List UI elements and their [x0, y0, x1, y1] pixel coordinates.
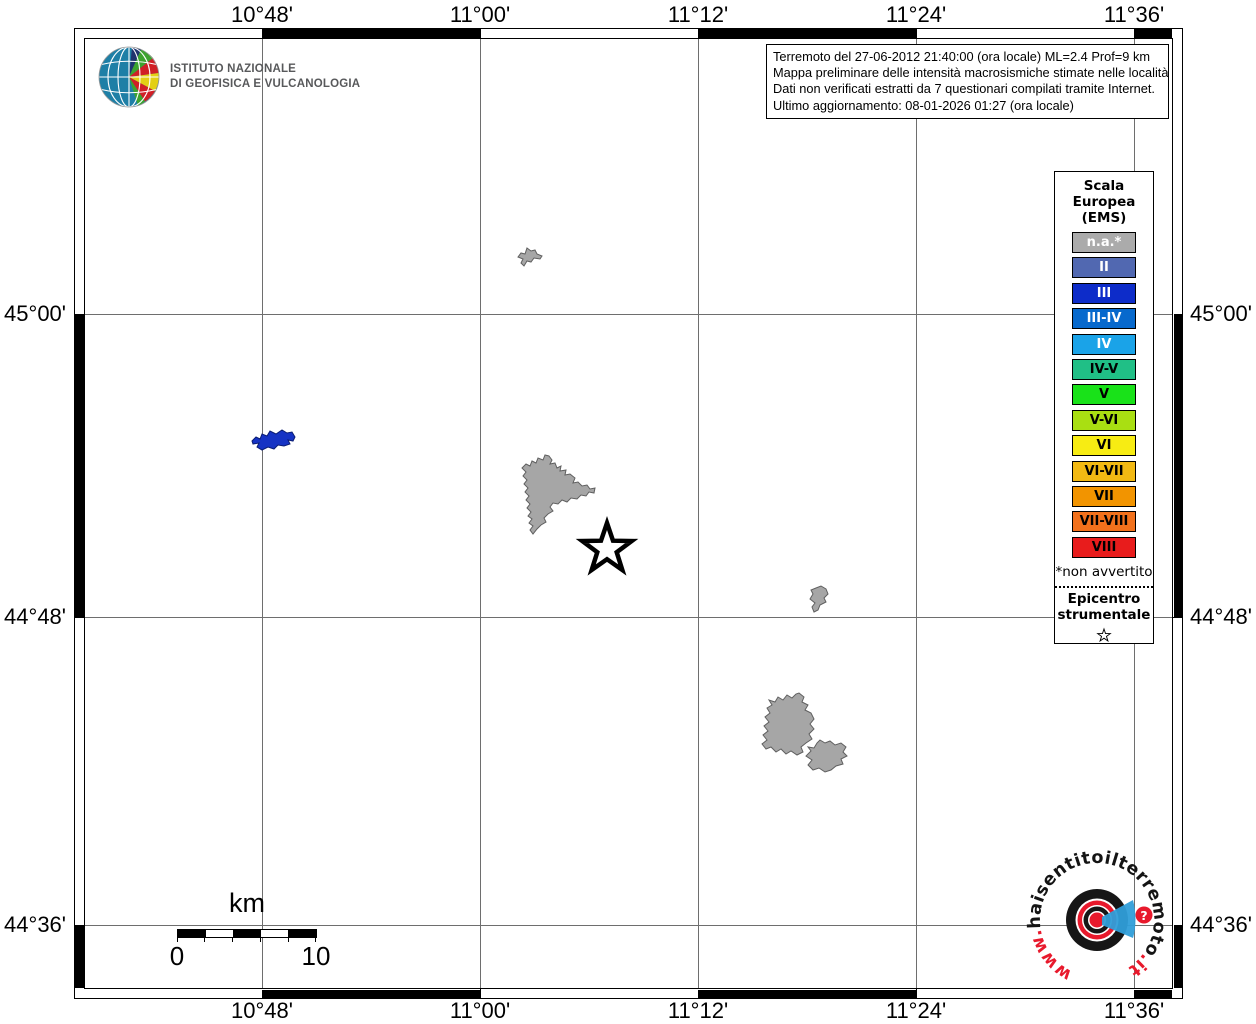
axis-label-top: 11°36' [1104, 2, 1164, 28]
legend-footnote: *non avvertito [1055, 564, 1152, 580]
ingv-org-line1: ISTITUTO NAZIONALE [170, 62, 360, 77]
frame-seg [1174, 925, 1183, 988]
axis-label-left: 45°00' [4, 301, 66, 327]
legend-swatch-vi: VI [1072, 435, 1136, 456]
frame-seg [1174, 314, 1183, 617]
scalebar-tick [204, 938, 205, 942]
ingv-org-name: ISTITUTO NAZIONALE DI GEOFISICA E VULCAN… [170, 62, 360, 92]
ingv-globe-icon [98, 46, 160, 108]
legend-title-line: Scala [1073, 178, 1136, 194]
frame-tick [916, 28, 917, 38]
axis-label-top: 11°24' [886, 2, 946, 28]
frame-tick [480, 28, 481, 38]
frame-seg [75, 925, 84, 988]
legend-swatches: n.a.* II III III-IV IV IV-V V V-VI VI VI… [1072, 232, 1136, 562]
scalebar-tick [288, 938, 289, 942]
map-frame-inner [84, 38, 1173, 989]
event-info-line4: Ultimo aggiornamento: 08-01-2026 01:27 (… [773, 98, 1162, 114]
legend-swatch-iv: IV [1072, 334, 1136, 355]
scalebar-tick [232, 938, 233, 942]
scalebar-start-label: 0 [170, 941, 184, 972]
axis-label-top: 11°12' [668, 2, 728, 28]
legend-divider [1055, 586, 1153, 588]
axis-label-bottom: 10°48' [231, 998, 293, 1024]
frame-seg [262, 29, 480, 38]
axis-label-right: 44°48' [1190, 604, 1252, 630]
axis-label-bottom: 11°36' [1104, 998, 1164, 1024]
legend-title-line: (EMS) [1073, 210, 1136, 226]
scalebar-segment [288, 930, 316, 937]
axis-label-top: 11°00' [450, 2, 510, 28]
legend-epicenter-title: Epicentro strumentale [1058, 591, 1151, 623]
legend-epicenter-line: strumentale [1058, 607, 1151, 623]
legend-swatch-vii: VII [1072, 486, 1136, 507]
axis-label-bottom: 11°24' [886, 998, 946, 1024]
scalebar-tick [260, 938, 261, 942]
ems-legend: Scala Europea (EMS) n.a.* II III III-IV … [1054, 171, 1154, 644]
event-info-line1: Terremoto del 27-06-2012 21:40:00 (ora l… [773, 49, 1162, 65]
scalebar-unit-label: km [207, 888, 287, 919]
legend-epicenter-line: Epicentro [1058, 591, 1151, 607]
frame-seg [1134, 29, 1172, 38]
legend-swatch-vi-vii: VI-VII [1072, 461, 1136, 482]
legend-swatch-iii: III [1072, 283, 1136, 304]
axis-label-right: 44°36' [1190, 912, 1252, 938]
scalebar-segment [178, 930, 206, 937]
event-info-line3: Dati non verificati estratti da 7 questi… [773, 81, 1162, 97]
legend-swatch-na: n.a.* [1072, 232, 1136, 253]
legend-epicenter-star-icon [1092, 627, 1116, 643]
legend-title: Scala Europea (EMS) [1073, 178, 1136, 226]
watermark-www: www. [1026, 927, 1076, 984]
axis-label-right: 45°00' [1190, 301, 1252, 327]
event-info-line2: Mappa preliminare delle intensità macros… [773, 65, 1162, 81]
frame-seg [262, 990, 480, 999]
scalebar-segment [206, 930, 234, 937]
macroseismic-map-page: 10°48' 11°00' 11°12' 11°24' 11°36' 10°48… [0, 0, 1256, 1024]
frame-seg [698, 990, 916, 999]
axis-label-bottom: 11°00' [450, 998, 510, 1024]
legend-swatch-viii: VIII [1072, 537, 1136, 558]
ingv-logo: ISTITUTO NAZIONALE DI GEOFISICA E VULCAN… [98, 46, 360, 108]
legend-swatch-iii-iv: III-IV [1072, 308, 1136, 329]
scalebar-segment [233, 930, 261, 937]
axis-label-bottom: 11°12' [668, 998, 728, 1024]
legend-swatch-ii: II [1072, 257, 1136, 278]
legend-swatch-vii-viii: VII-VIII [1072, 511, 1136, 532]
legend-swatch-iv-v: IV-V [1072, 359, 1136, 380]
frame-tick [1173, 617, 1183, 618]
scalebar [177, 929, 317, 938]
axis-label-top: 10°48' [231, 2, 293, 28]
axis-label-left: 44°48' [4, 604, 66, 630]
legend-title-line: Europea [1073, 194, 1136, 210]
scalebar-end-label: 10 [302, 941, 331, 972]
legend-swatch-v: V [1072, 384, 1136, 405]
frame-seg [698, 29, 916, 38]
haisentitoilterremoto-logo: www.haisentitoilterremoto.it ? [1022, 845, 1172, 995]
axis-label-left: 44°36' [4, 912, 66, 938]
frame-seg [75, 314, 84, 617]
event-info-box: Terremoto del 27-06-2012 21:40:00 (ora l… [766, 44, 1169, 119]
legend-swatch-v-vi: V-VI [1072, 410, 1136, 431]
question-mark: ? [1140, 908, 1147, 923]
frame-tick [74, 617, 84, 618]
ingv-org-line2: DI GEOFISICA E VULCANOLOGIA [170, 77, 360, 92]
scalebar-segment [261, 930, 289, 937]
